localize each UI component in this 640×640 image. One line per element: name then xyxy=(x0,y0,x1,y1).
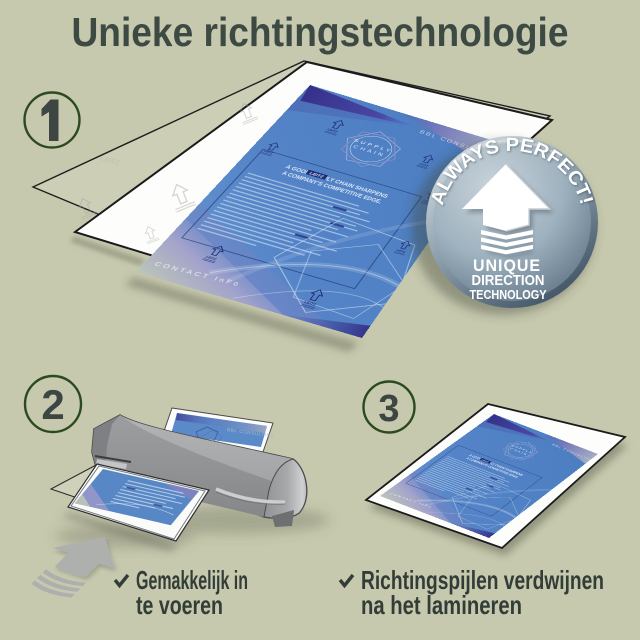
svg-text:DIRECTION: DIRECTION xyxy=(472,273,545,289)
svg-text:TECHNOLOGY: TECHNOLOGY xyxy=(470,288,548,302)
